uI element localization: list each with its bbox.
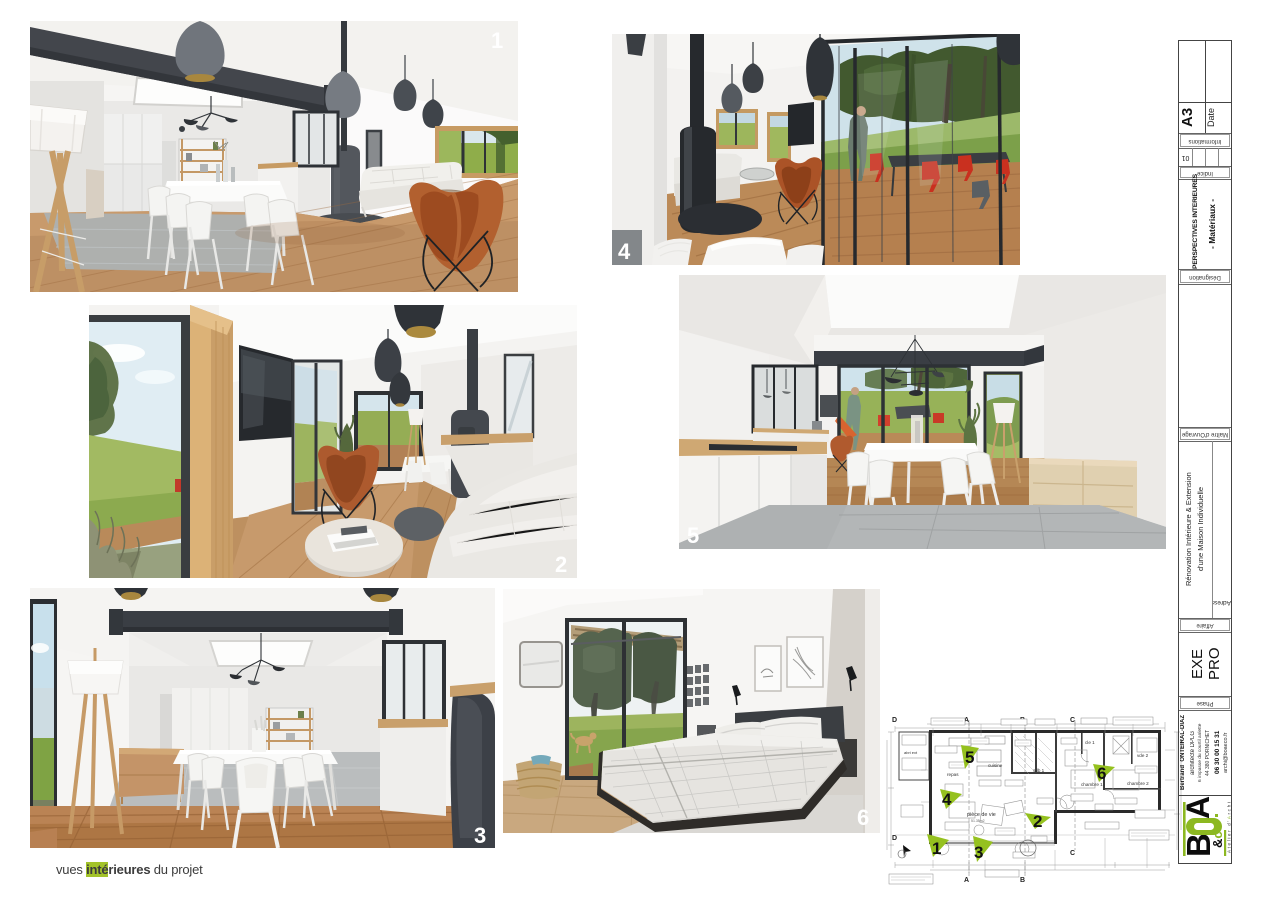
svg-text:Atelier d’Archi: Atelier d’Archi xyxy=(1227,801,1232,853)
svg-text:2: 2 xyxy=(555,552,567,577)
svg-text:sdb 1: sdb 1 xyxy=(1033,768,1045,773)
svg-text:6: 6 xyxy=(857,805,869,830)
svg-text:2: 2 xyxy=(1033,812,1042,831)
svg-text:chambre 2: chambre 2 xyxy=(1127,781,1149,786)
svg-text:abri ext: abri ext xyxy=(904,750,918,755)
svg-text:1: 1 xyxy=(932,839,941,858)
svg-text:repas: repas xyxy=(947,772,959,777)
svg-text:pièce de vie: pièce de vie xyxy=(967,812,996,818)
svg-text:5: 5 xyxy=(687,523,699,548)
svg-text:C: C xyxy=(1070,850,1075,857)
svg-text:3: 3 xyxy=(474,823,486,848)
svg-text:6: 6 xyxy=(1097,764,1106,783)
svg-text:4: 4 xyxy=(942,790,952,809)
svg-text:A: A xyxy=(964,877,969,884)
svg-text:3: 3 xyxy=(974,843,983,862)
svg-text:&c: &c xyxy=(1210,831,1225,848)
svg-text:51.35m2: 51.35m2 xyxy=(971,819,985,823)
svg-text:A: A xyxy=(1180,796,1216,819)
svg-text:4: 4 xyxy=(618,239,631,264)
svg-text:1: 1 xyxy=(491,28,503,53)
svg-text:B: B xyxy=(1020,877,1025,884)
svg-text:5: 5 xyxy=(965,748,974,767)
svg-text:cle 1: cle 1 xyxy=(1085,740,1095,745)
svg-text:D: D xyxy=(892,835,897,842)
svg-text:cuisine: cuisine xyxy=(988,763,1003,768)
svg-text:D: D xyxy=(892,717,897,724)
svg-text:vde 2: vde 2 xyxy=(1137,753,1149,758)
svg-text:C: C xyxy=(1070,717,1075,724)
